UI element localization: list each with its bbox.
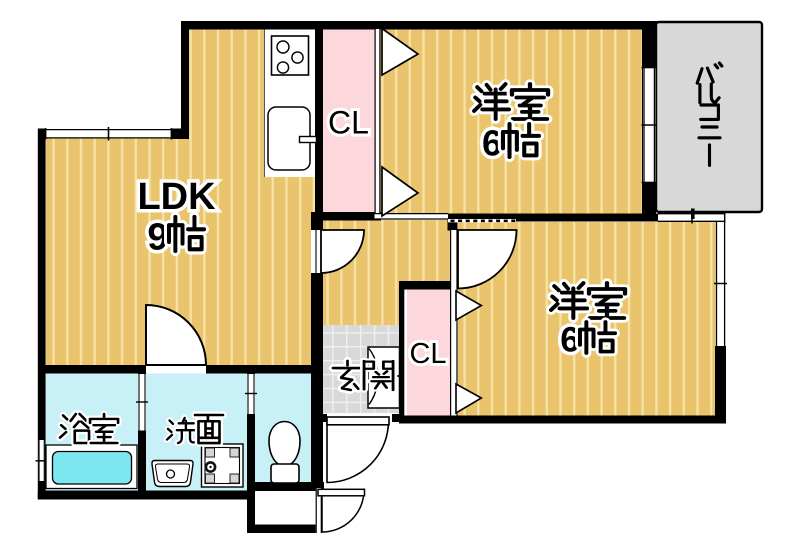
svg-text:CL: CL bbox=[409, 338, 446, 370]
svg-text:CL: CL bbox=[328, 105, 369, 141]
svg-text:LDK: LDK bbox=[137, 176, 216, 218]
